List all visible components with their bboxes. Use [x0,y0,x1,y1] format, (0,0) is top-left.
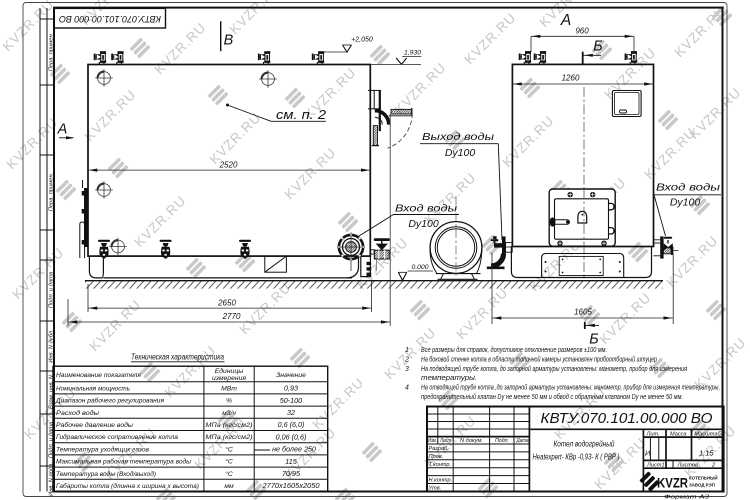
svg-text:Вход воды: Вход воды [395,203,457,215]
svg-text:3: 3 [405,366,409,373]
svg-text:В: В [224,33,234,49]
svg-text:КВТУ.070.101.00.000 ВО: КВТУ.070.101.00.000 ВО [541,411,713,427]
svg-text:Б: Б [589,332,598,348]
svg-text:МПа (кгс/см2): МПа (кгс/см2) [206,422,253,429]
svg-text:Листов: Листов [677,462,698,468]
svg-text:N докум.: N докум. [460,438,483,444]
svg-text:Значение: Значение [276,372,306,379]
svg-text:Расход воды: Расход воды [56,409,99,417]
svg-text:Пров.: Пров. [429,454,444,460]
svg-text:1: 1 [405,347,409,354]
svg-text:Перв. примен.: Перв. примен. [48,173,54,212]
svg-text:0,6 (6,0): 0,6 (6,0) [278,420,305,429]
svg-text:32: 32 [287,408,295,417]
svg-text:1260: 1260 [562,73,580,82]
svg-text:Температура уходящих газов: Температура уходящих газов [56,445,149,453]
svg-text:2770х1605х2050: 2770х1605х2050 [261,481,319,490]
svg-text:50-100: 50-100 [280,396,302,405]
svg-text:2: 2 [404,356,409,363]
svg-text:предохранительный клапан Dy н: предохранительный клапан Dy не менее 50 … [421,393,683,401]
svg-text:Утв.: Утв. [428,486,442,492]
svg-text:МПа (кгс/см2): МПа (кгс/см2) [206,434,253,441]
svg-text:Единицы: Единицы [215,367,243,375]
svg-text:м3/ч: м3/ч [222,410,236,417]
svg-text:Heatexpert- КВр -0,93- К ( РВР: Heatexpert- КВр -0,93- К ( РВР ) [533,453,620,462]
svg-text:Масса: Масса [670,431,687,437]
svg-text:115: 115 [285,457,297,466]
svg-text:Лист: Лист [646,462,662,468]
svg-text:Подп. и дата: Подп. и дата [48,271,54,308]
svg-text:На подводящей трубе котла, д: На подводящей трубе котла, до запорной а… [421,365,687,373]
svg-text:Формат А3: Формат А3 [664,495,710,500]
svg-text:температуры.: температуры. [421,375,477,382]
svg-text:KVZR: KVZR [657,475,688,491]
svg-text:Перв. примен.: Перв. примен. [48,33,54,72]
svg-text:Разраб.: Разраб. [429,446,449,452]
svg-text:Все размеры для справок, допус: Все размеры для справок, допустимое откл… [421,346,607,354]
svg-text:Наименование показателя: Наименование показателя [56,372,141,379]
svg-text:°С: °С [225,470,233,478]
svg-text:°С: °С [225,445,233,453]
svg-text:°С: °С [225,458,233,466]
svg-text:см. п. 2: см. п. 2 [276,108,326,122]
svg-text:Вход воды: Вход воды [656,181,720,193]
svg-text:Изм.: Изм. [428,438,437,444]
svg-text:1: 1 [662,462,665,468]
svg-text:Диапазон рабочего регулировани: Диапазон рабочего регулирования [55,397,164,405]
svg-text:КОТЕЛЬНЫЙ: КОТЕЛЬНЫЙ [689,476,718,481]
svg-text:Рабочее давление воды: Рабочее давление воды [56,421,133,429]
svg-text:Б: Б [593,38,602,54]
svg-text:960: 960 [575,27,589,36]
svg-text:70/95: 70/95 [282,469,301,478]
svg-text:Dy100: Dy100 [408,218,439,230]
svg-text:Дата: Дата [516,438,529,444]
svg-text:Т.контр.: Т.контр. [429,462,452,468]
svg-text:Инв. N дубл.: Инв. N дубл. [48,329,54,363]
svg-text:Лист: Лист [439,438,451,444]
svg-text:2650: 2650 [217,298,236,307]
svg-text:Котел водогрейный: Котел водогрейный [554,439,615,449]
svg-text:2520: 2520 [219,160,238,169]
svg-text:1605: 1605 [574,308,592,317]
svg-text:4: 4 [405,385,409,392]
svg-text:Лит.: Лит. [646,431,660,437]
svg-text:И: И [645,449,651,458]
svg-text:Номинальная мощность: Номинальная мощность [56,385,130,392]
svg-text:На отводящей трубе котла ,до з: На отводящей трубе котла ,до запорной ар… [421,384,720,392]
svg-text:не более 250: не более 250 [272,445,316,454]
svg-text:Максимальная рабочая температу: Максимальная рабочая температура воды [56,458,191,466]
svg-text:0.000: 0.000 [411,264,428,271]
svg-text:На боковой стенке котла в обла: На боковой стенке котла в области топочн… [421,355,657,363]
svg-text:1:15: 1:15 [699,449,714,458]
svg-text:2770: 2770 [222,312,241,321]
svg-text:КВТУ.070.101.00.000 ВО: КВТУ.070.101.00.000 ВО [58,13,161,24]
svg-text:Выход воды: Выход воды [422,131,494,143]
svg-text:МВт: МВт [221,385,237,392]
svg-text:Температура воды (Вход/выход): Температура воды (Вход/выход) [56,470,156,478]
svg-text:1,930: 1,930 [404,50,421,57]
svg-text:%: % [226,398,232,405]
svg-text:Техническая характеристика: Техническая характеристика [131,353,224,362]
svg-text:0,93: 0,93 [284,384,298,393]
svg-text:0,06 (0,6): 0,06 (0,6) [276,432,307,441]
svg-text:мм: мм [224,483,234,490]
svg-text:Dy100: Dy100 [445,147,476,159]
svg-text:А: А [57,122,68,138]
svg-text:Масштаб: Масштаб [695,431,722,437]
svg-text:Габариты котла (длинна х ширин: Габариты котла (длинна х ширина х высота… [56,482,199,490]
svg-text:измерения: измерения [212,375,246,382]
svg-text:Dy100: Dy100 [670,196,701,208]
svg-text:+2,050: +2,050 [351,37,373,44]
svg-text:ЗАВОД РЭП: ЗАВОД РЭП [689,483,715,488]
svg-text:Н.контр.: Н.контр. [429,478,453,484]
svg-text:Гидравлическое сопративление к: Гидравлическое сопративление котла [56,433,178,441]
svg-text:Подп.: Подп. [495,438,509,444]
svg-text:А: А [560,12,571,29]
